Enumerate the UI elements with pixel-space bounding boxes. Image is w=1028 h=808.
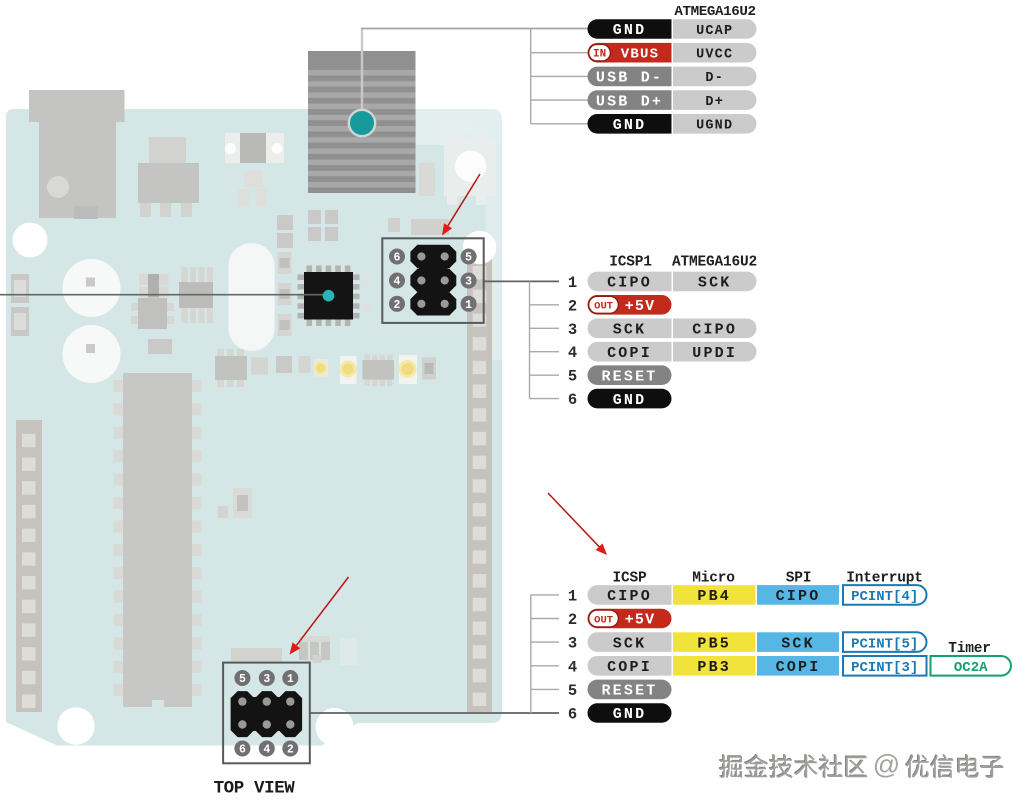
svg-text:GND: GND — [613, 22, 647, 39]
svg-text:5: 5 — [568, 682, 577, 700]
svg-text:PCINT[3]: PCINT[3] — [851, 660, 918, 676]
svg-text:D+: D+ — [705, 95, 724, 110]
svg-text:6: 6 — [568, 391, 577, 409]
svg-text:3: 3 — [465, 276, 472, 289]
svg-text:PCINT[5]: PCINT[5] — [851, 636, 918, 652]
svg-text:CIPO: CIPO — [692, 322, 737, 339]
svg-text:TOP VIEW: TOP VIEW — [214, 779, 296, 799]
svg-text:1: 1 — [568, 274, 577, 292]
svg-text:2: 2 — [394, 299, 401, 312]
svg-text:VBUS: VBUS — [621, 47, 659, 63]
svg-text:SCK: SCK — [781, 635, 815, 652]
svg-text:D-: D- — [705, 71, 724, 86]
svg-text:PCINT[4]: PCINT[4] — [851, 589, 918, 605]
svg-text:SCK: SCK — [613, 322, 647, 339]
svg-text:OC2A: OC2A — [954, 660, 988, 676]
svg-text:SPI: SPI — [786, 571, 812, 587]
svg-text:OUT: OUT — [594, 614, 613, 626]
svg-text:4: 4 — [263, 744, 270, 757]
svg-text:RESET: RESET — [601, 368, 657, 385]
svg-text:UVCC: UVCC — [696, 48, 733, 63]
svg-text:5: 5 — [568, 368, 577, 386]
svg-text:OUT: OUT — [594, 301, 613, 313]
svg-text:5: 5 — [239, 673, 246, 686]
svg-text:3: 3 — [568, 635, 577, 653]
svg-text:CIPO: CIPO — [776, 588, 821, 605]
svg-text:4: 4 — [568, 658, 577, 676]
svg-text:COPI: COPI — [607, 659, 652, 676]
svg-text:2: 2 — [568, 297, 577, 315]
svg-text:Micro: Micro — [692, 571, 735, 587]
svg-text:UGND: UGND — [696, 119, 733, 134]
svg-text:COPI: COPI — [607, 345, 652, 362]
svg-text:4: 4 — [568, 344, 577, 362]
svg-text:5: 5 — [465, 252, 472, 265]
svg-text:6: 6 — [568, 706, 577, 724]
svg-text:COPI: COPI — [776, 659, 821, 676]
svg-text:Timer: Timer — [948, 641, 991, 657]
svg-text:UPDI: UPDI — [692, 345, 737, 362]
svg-text:2: 2 — [287, 744, 294, 757]
svg-text:GND: GND — [613, 392, 647, 409]
svg-text:PB4: PB4 — [697, 588, 731, 605]
svg-text:2: 2 — [568, 611, 577, 629]
svg-text:3: 3 — [568, 321, 577, 339]
svg-text:+5V: +5V — [625, 612, 656, 629]
svg-text:GND: GND — [613, 706, 647, 723]
svg-text:4: 4 — [394, 276, 401, 289]
svg-text:1: 1 — [465, 299, 472, 312]
svg-text:ATMEGA16U2: ATMEGA16U2 — [674, 4, 755, 20]
svg-text:USB D+: USB D+ — [596, 93, 663, 110]
svg-text:3: 3 — [263, 673, 270, 686]
svg-text:ATMEGA16U2: ATMEGA16U2 — [672, 255, 757, 271]
svg-text:6: 6 — [394, 252, 401, 265]
svg-text:UCAP: UCAP — [696, 24, 733, 39]
svg-text:IN: IN — [593, 49, 606, 61]
svg-text:6: 6 — [239, 744, 246, 757]
svg-text:RESET: RESET — [601, 683, 657, 700]
svg-text:USB D-: USB D- — [596, 70, 663, 87]
svg-text:ICSP1: ICSP1 — [609, 255, 652, 271]
svg-text:CIPO: CIPO — [607, 275, 652, 292]
svg-text:ICSP: ICSP — [612, 571, 647, 587]
svg-text:1: 1 — [568, 587, 577, 605]
svg-text:PB5: PB5 — [697, 635, 731, 652]
svg-text:PB3: PB3 — [697, 659, 731, 676]
svg-text:1: 1 — [287, 673, 294, 686]
svg-text:CIPO: CIPO — [607, 588, 652, 605]
svg-text:+5V: +5V — [625, 298, 656, 315]
svg-text:GND: GND — [613, 117, 647, 134]
svg-text:SCK: SCK — [613, 635, 647, 652]
svg-text:@: @ — [873, 750, 900, 780]
svg-text:SCK: SCK — [698, 275, 732, 292]
